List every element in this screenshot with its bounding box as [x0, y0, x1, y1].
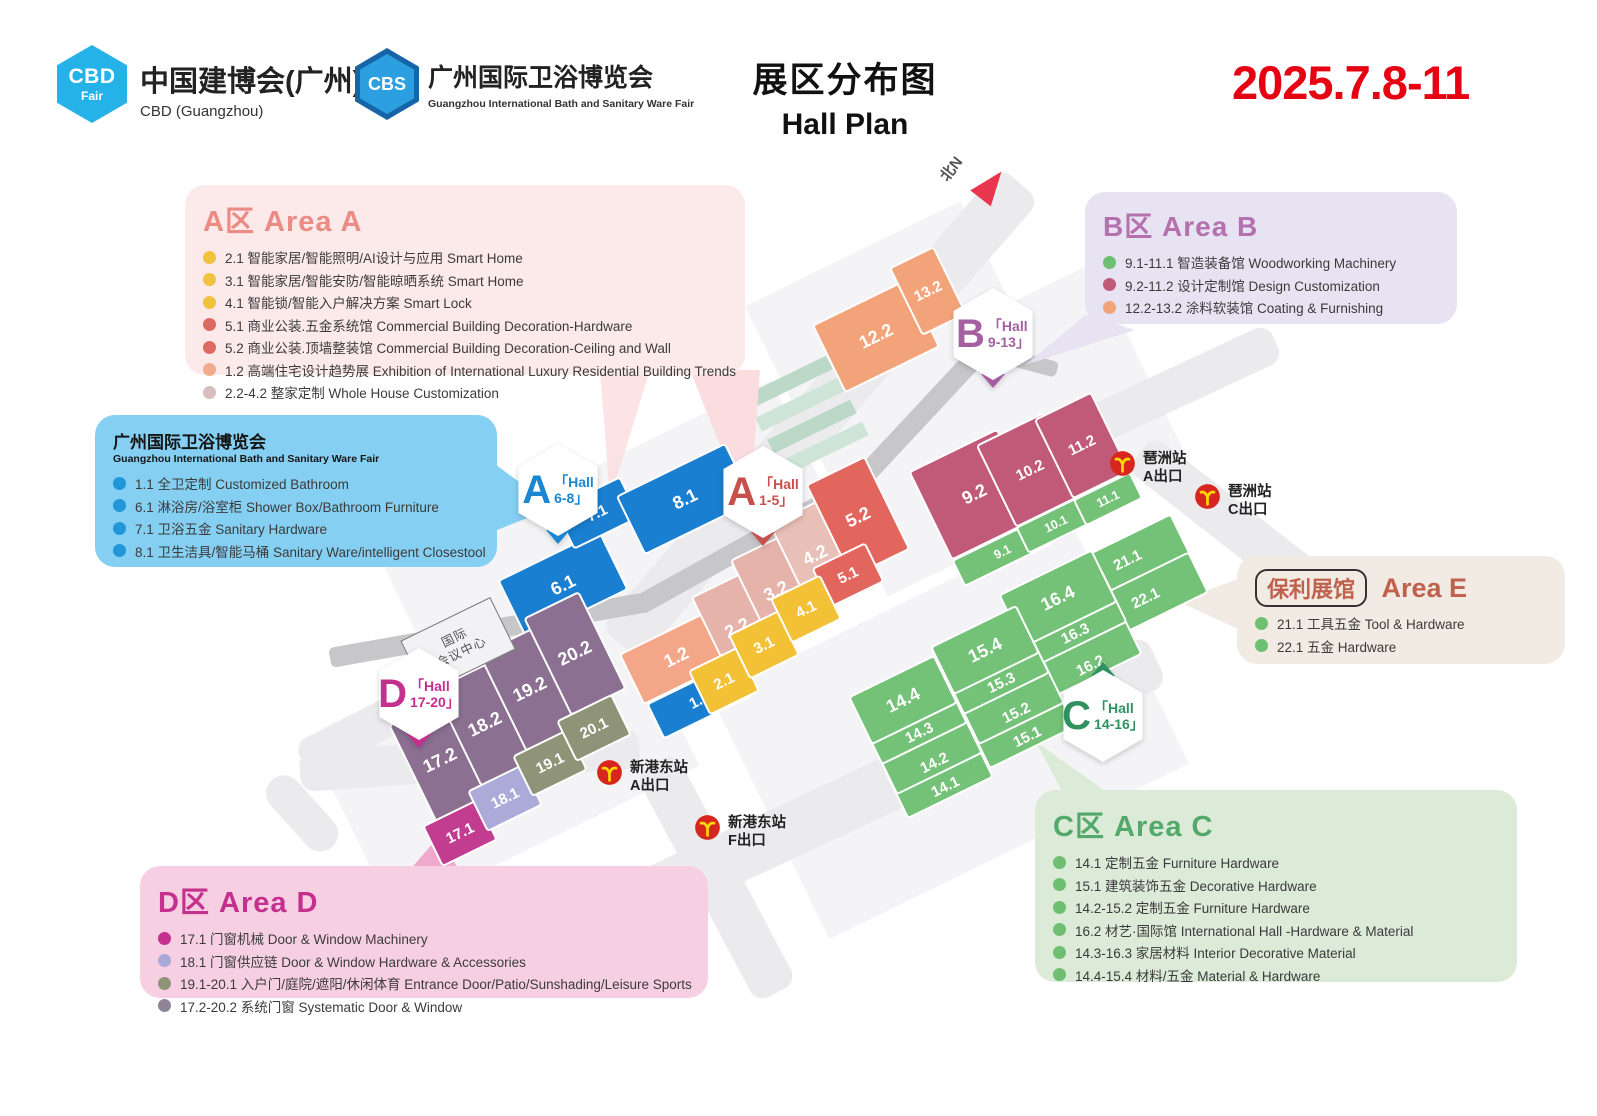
- hall-label: 10.1: [1042, 512, 1070, 535]
- hall-label: 15.4: [965, 633, 1006, 667]
- cbd-logo-text: CBD: [69, 65, 116, 89]
- hall-label: 3.1: [751, 633, 777, 657]
- legend-item: 3.1 智能家居/智能安防/智能晾晒系统 Smart Home: [203, 270, 727, 290]
- legend-item: 17.2-20.2 系统门窗 Systematic Door & Window: [158, 996, 690, 1016]
- legend-item: 4.1 智能锁/智能入户解决方案 Smart Lock: [203, 292, 727, 312]
- legend-item: 16.2 材艺·国际馆 International Hall -Hardware…: [1053, 920, 1499, 940]
- hall-label: 9.1: [992, 542, 1014, 562]
- legend-dot-icon: [158, 954, 171, 967]
- station-name: 琶洲站: [1143, 450, 1187, 468]
- hall-label: 17.2: [420, 743, 461, 777]
- legend-dot-icon: [158, 932, 171, 945]
- legend-dot-icon: [1255, 639, 1268, 652]
- legend-dot-icon: [158, 999, 171, 1012]
- badge-hall-6-8: A 「Hall6-8」: [515, 444, 601, 544]
- metro-icon: [694, 814, 721, 841]
- legend-dot-icon: [113, 477, 126, 490]
- legend-dot-icon: [113, 499, 126, 512]
- legend-title-cn: 广州国际卫浴博览会: [113, 428, 479, 453]
- legend-item: 18.1 门窗供应链 Door & Window Hardware & Acce…: [158, 951, 690, 971]
- legend-dot-icon: [203, 341, 216, 354]
- legend-dot-icon: [1053, 878, 1066, 891]
- cbs-name-en: Guangzhou International Bath and Sanitar…: [428, 98, 694, 110]
- hall-label: 11.2: [1066, 432, 1099, 460]
- badge-line2: 17-20」: [410, 694, 460, 710]
- hall-label: 18.2: [465, 707, 506, 741]
- legend-title-cn: D区: [158, 887, 210, 919]
- legend-item: 17.1 门窗机械 Door & Window Machinery: [158, 928, 690, 948]
- station-name: 新港东站: [728, 814, 786, 832]
- legend-title-en: Area B: [1162, 211, 1258, 242]
- cbd-logo-subtext: Fair: [81, 89, 103, 103]
- legend-item: 21.1 工具五金 Tool & Hardware: [1255, 613, 1547, 633]
- legend-item: 1.2 高端住宅设计趋势展 Exhibition of Internationa…: [203, 360, 727, 380]
- legend-item: 15.1 建筑装饰五金 Decorative Hardware: [1053, 875, 1499, 895]
- hall-label: 4.1: [793, 597, 819, 621]
- legend-item: 14.3-16.3 家居材料 Interior Decorative Mater…: [1053, 942, 1499, 962]
- hall-label: 2.1: [711, 669, 737, 693]
- badge-letter: B: [956, 314, 985, 354]
- badge-line1: 「Hall: [410, 678, 450, 694]
- badge-hall-9-13: B 「Hall9-13」: [950, 288, 1036, 388]
- legend-dot-icon: [1053, 901, 1066, 914]
- legend-dot-icon: [1053, 923, 1066, 936]
- hall-plan-poster: CBD Fair 中国建博会(广州) CBD (Guangzhou) CBS 广…: [0, 0, 1597, 1116]
- legend-dot-icon: [1255, 617, 1268, 630]
- event-dates: 2025.7.8-11: [1232, 55, 1469, 110]
- badge-line2: 6-8」: [554, 490, 588, 506]
- legend-dot-icon: [203, 296, 216, 309]
- station-exit: F出口: [728, 832, 786, 850]
- station-name: 琶洲站: [1228, 483, 1272, 501]
- legend-item: 7.1 卫浴五金 Sanitary Hardware: [113, 518, 479, 538]
- legend-dot-icon: [203, 273, 216, 286]
- legend-item: 5.2 商业公装.顶墙整装馆 Commercial Building Decor…: [203, 337, 727, 357]
- legend-item: 22.1 五金 Hardware: [1255, 636, 1547, 656]
- hall-label: 16.4: [1038, 581, 1079, 615]
- station-exit: A出口: [1143, 468, 1187, 486]
- cbd-name-en: CBD (Guangzhou): [140, 103, 362, 120]
- station-xingangdong-exit-f: 新港东站F出口: [694, 814, 786, 850]
- hall-label: 1.2: [661, 643, 693, 673]
- legend-area-d: D区 Area D 17.1 门窗机械 Door & Window Machin…: [140, 866, 708, 998]
- badge-hall-17-20: D 「Hall17-20」: [376, 648, 462, 748]
- badge-line1: 「Hall: [988, 318, 1028, 334]
- badge-line1: 「Hall: [554, 474, 594, 490]
- legend-item: 9.1-11.1 智造装备馆 Woodworking Machinery: [1103, 252, 1439, 272]
- legend-dot-icon: [1053, 856, 1066, 869]
- badge-line1: 「Hall: [759, 476, 799, 492]
- hall-label: 17.1: [443, 819, 477, 847]
- hall-label: 20.1: [577, 714, 611, 742]
- legend-item: 2.1 智能家居/智能照明/AI设计与应用 Smart Home: [203, 247, 727, 267]
- legend-item: 1.1 全卫定制 Customized Bathroom: [113, 473, 479, 493]
- legend-title-en: Area A: [264, 206, 362, 238]
- legend-dot-icon: [203, 251, 216, 264]
- badge-line2: 9-13」: [988, 334, 1030, 350]
- hall-label: 9.2: [959, 480, 991, 510]
- badge-line2: 14-16」: [1094, 716, 1144, 732]
- metro-icon: [1194, 483, 1221, 510]
- legend-area-b: B区 Area B 9.1-11.1 智造装备馆 Woodworking Mac…: [1085, 192, 1457, 324]
- legend-dot-icon: [1103, 256, 1116, 269]
- legend-dot-icon: [158, 977, 171, 990]
- badge-letter: C: [1062, 696, 1091, 736]
- legend-title-en: Area C: [1114, 811, 1214, 843]
- cbs-logo-text: CBS: [368, 74, 406, 95]
- legend-item: 9.2-11.2 设计定制馆 Design Customization: [1103, 275, 1439, 295]
- legend-dot-icon: [113, 522, 126, 535]
- legend-item: 5.1 商业公装.五金系统馆 Commercial Building Decor…: [203, 315, 727, 335]
- north-label: 北N: [935, 152, 967, 185]
- legend-item: 12.2-13.2 涂料软装馆 Coating & Furnishing: [1103, 297, 1439, 317]
- legend-item: 14.2-15.2 定制五金 Furniture Hardware: [1053, 897, 1499, 917]
- badge-line1: 「Hall: [1094, 700, 1134, 716]
- cbd-fair-name: 中国建博会(广州) CBD (Guangzhou): [140, 58, 362, 120]
- legend-dot-icon: [1103, 278, 1116, 291]
- legend-item: 14.1 定制五金 Furniture Hardware: [1053, 852, 1499, 872]
- hall-label: 5.1: [835, 563, 861, 587]
- hall-label: 14.4: [883, 683, 924, 717]
- hall-label: 22.1: [1129, 584, 1163, 612]
- legend-pill: 保利展馆: [1255, 569, 1367, 607]
- badge-hall-14-16: C 「Hall14-16」: [1060, 662, 1146, 762]
- legend-dot-icon: [1103, 301, 1116, 314]
- hall-label: 21.1: [1111, 546, 1145, 574]
- station-pazhou-exit-c: 琶洲站C出口: [1194, 483, 1272, 519]
- legend-item: 19.1-20.1 入户门/庭院/遮阳/休闲体育 Entrance Door/P…: [158, 973, 690, 993]
- hall-label: 10.2: [1013, 456, 1047, 484]
- legend-title-cn: C区: [1053, 811, 1105, 843]
- hall-label: 12.2: [856, 319, 897, 353]
- page-title-cn: 展区分布图: [740, 52, 950, 103]
- station-pazhou-exit-a: 琶洲站A出口: [1109, 450, 1187, 486]
- station-xingangdong-exit-a: 新港东站A出口: [596, 759, 688, 795]
- legend-dot-icon: [203, 318, 216, 331]
- legend-item: 14.4-15.4 材料/五金 Material & Hardware: [1053, 965, 1499, 985]
- hall-label: 5.2: [842, 502, 874, 532]
- station-exit: A出口: [630, 777, 688, 795]
- badge-line2: 1-5」: [759, 492, 793, 508]
- metro-icon: [596, 759, 623, 786]
- hall-label: 18.1: [488, 784, 522, 812]
- legend-area-e: 保利展馆 Area E 21.1 工具五金 Tool & Hardware 22…: [1237, 556, 1565, 664]
- cbs-name-cn: 广州国际卫浴博览会: [428, 58, 694, 94]
- legend-title-en: Area D: [219, 887, 319, 919]
- legend-area-a: A区 Area A 2.1 智能家居/智能照明/AI设计与应用 Smart Ho…: [185, 185, 745, 375]
- legend-title-cn: B区: [1103, 211, 1153, 242]
- hall-label: 20.2: [555, 636, 596, 670]
- badge-letter: A: [727, 472, 756, 512]
- cbd-fair-logo: CBD Fair: [57, 45, 127, 123]
- page-title: 展区分布图 Hall Plan: [740, 52, 950, 142]
- legend-item: 2.2-4.2 整家定制 Whole House Customization: [203, 382, 727, 402]
- legend-title-en: Guangzhou International Bath and Sanitar…: [113, 453, 479, 465]
- legend-item: 6.1 淋浴房/浴室柜 Shower Box/Bathroom Furnitur…: [113, 496, 479, 516]
- legend-dot-icon: [113, 544, 126, 557]
- page-title-en: Hall Plan: [740, 108, 950, 142]
- legend-bath-fair: 广州国际卫浴博览会 Guangzhou International Bath a…: [95, 415, 497, 567]
- hall-label: 19.1: [533, 749, 567, 777]
- hall-label: 8.1: [669, 484, 701, 514]
- hall-label: 13.2: [911, 277, 945, 305]
- legend-dot-icon: [1053, 946, 1066, 959]
- cbd-name-cn: 中国建博会(广州): [140, 58, 362, 100]
- legend-dot-icon: [203, 363, 216, 376]
- station-exit: C出口: [1228, 501, 1272, 519]
- station-name: 新港东站: [630, 759, 688, 777]
- legend-dot-icon: [1053, 968, 1066, 981]
- legend-dot-icon: [203, 386, 216, 399]
- legend-title-en: Area E: [1381, 573, 1467, 603]
- hall-label: 19.2: [510, 672, 551, 706]
- legend-title-cn: A区: [203, 206, 255, 238]
- cbs-fair-name: 广州国际卫浴博览会 Guangzhou International Bath a…: [428, 58, 694, 110]
- badge-letter: A: [522, 470, 551, 510]
- legend-area-c: C区 Area C 14.1 定制五金 Furniture Hardware 1…: [1035, 790, 1517, 982]
- hall-label: 11.1: [1094, 488, 1121, 511]
- metro-icon: [1109, 450, 1136, 477]
- badge-hall-1-5: A 「Hall1-5」: [720, 446, 806, 546]
- badge-letter: D: [378, 674, 407, 714]
- legend-item: 8.1 卫生洁具/智能马桶 Sanitary Ware/intelligent …: [113, 541, 479, 561]
